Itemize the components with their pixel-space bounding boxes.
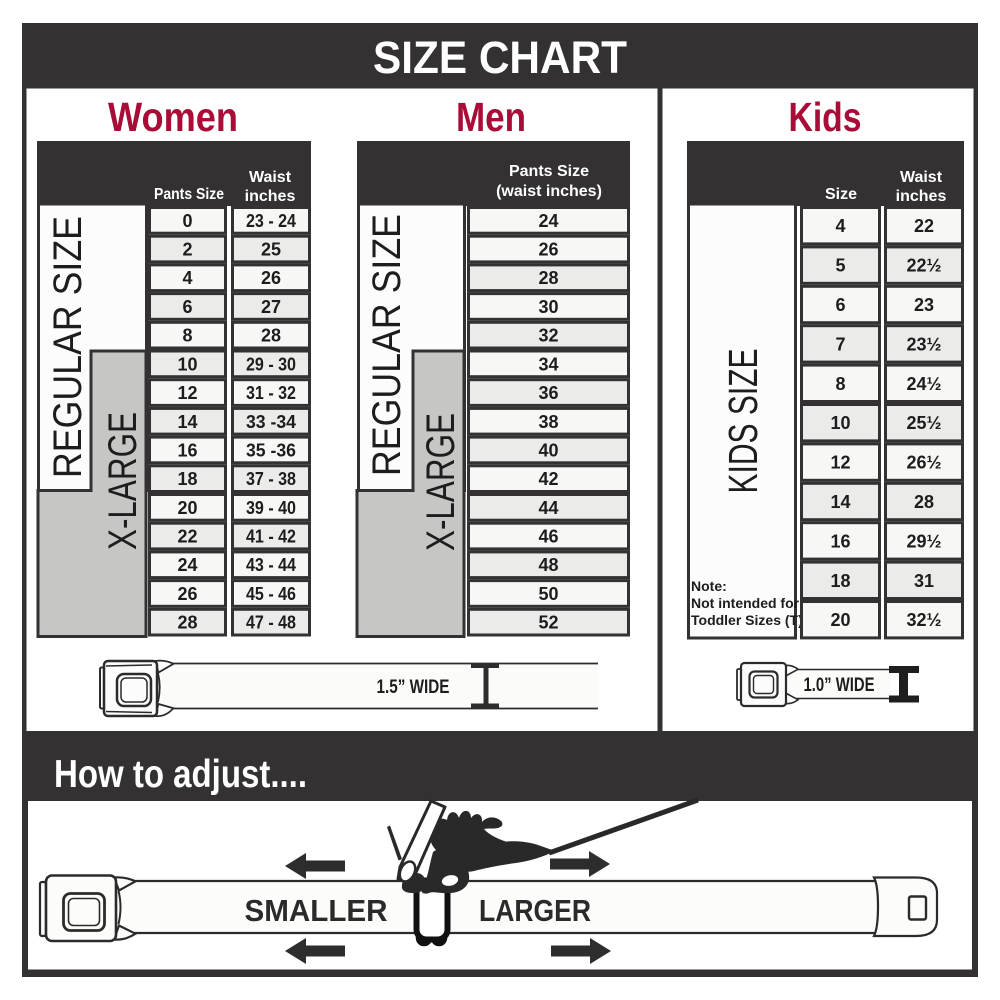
svg-text:46: 46 (538, 527, 558, 547)
svg-text:43 - 44: 43 - 44 (246, 555, 296, 575)
svg-text:36: 36 (538, 383, 558, 403)
svg-text:Toddler Sizes (T): Toddler Sizes (T) (691, 612, 803, 628)
svg-text:1.0” WIDE: 1.0” WIDE (804, 674, 875, 696)
svg-text:4: 4 (835, 216, 845, 236)
svg-text:42: 42 (538, 469, 558, 489)
svg-text:LARGER: LARGER (479, 893, 591, 928)
svg-text:45 - 46: 45 - 46 (246, 584, 296, 604)
svg-text:28: 28 (261, 326, 281, 346)
svg-text:44: 44 (538, 498, 558, 518)
svg-text:23 - 24: 23 - 24 (246, 211, 296, 231)
svg-text:23: 23 (914, 295, 934, 315)
svg-text:27: 27 (261, 297, 281, 317)
svg-text:Size: Size (825, 186, 857, 203)
svg-text:33 -34: 33 -34 (246, 412, 296, 432)
svg-text:2: 2 (182, 240, 192, 260)
svg-text:22½: 22½ (906, 256, 941, 276)
svg-text:How to adjust....: How to adjust.... (54, 753, 307, 796)
svg-text:6: 6 (182, 297, 192, 317)
svg-text:Not intended for: Not intended for (691, 595, 800, 611)
svg-text:1.5” WIDE: 1.5” WIDE (377, 676, 450, 698)
svg-text:16: 16 (830, 531, 850, 551)
svg-text:26½: 26½ (906, 453, 941, 473)
svg-text:Women: Women (108, 94, 238, 140)
svg-text:8: 8 (835, 374, 845, 394)
svg-text:SMALLER: SMALLER (245, 893, 388, 928)
svg-text:Pants Size: Pants Size (154, 186, 224, 203)
svg-text:12: 12 (177, 383, 197, 403)
svg-text:REGULAR SIZE: REGULAR SIZE (365, 214, 409, 476)
svg-text:38: 38 (538, 412, 558, 432)
svg-text:20: 20 (830, 610, 850, 630)
svg-text:22: 22 (914, 216, 934, 236)
svg-text:25½: 25½ (906, 413, 941, 433)
svg-text:Waist: Waist (249, 169, 292, 186)
svg-text:26: 26 (177, 584, 197, 604)
svg-text:26: 26 (261, 268, 281, 288)
svg-text:X-LARGE: X-LARGE (419, 413, 463, 551)
svg-text:48: 48 (538, 555, 558, 575)
svg-text:inches: inches (896, 188, 947, 205)
svg-text:31 - 32: 31 - 32 (246, 383, 296, 403)
svg-text:14: 14 (830, 492, 850, 512)
svg-text:inches: inches (245, 188, 296, 205)
svg-text:Kids: Kids (789, 94, 862, 140)
svg-text:Men: Men (456, 94, 526, 140)
svg-text:40: 40 (538, 441, 558, 461)
svg-text:32: 32 (538, 326, 558, 346)
svg-text:24: 24 (177, 555, 197, 575)
svg-text:8: 8 (182, 326, 192, 346)
svg-text:28: 28 (177, 613, 197, 633)
svg-text:18: 18 (177, 469, 197, 489)
svg-text:28: 28 (538, 268, 558, 288)
svg-text:30: 30 (538, 297, 558, 317)
svg-text:28: 28 (914, 492, 934, 512)
svg-text:Waist: Waist (900, 169, 943, 186)
svg-text:Note:: Note: (691, 578, 727, 594)
svg-text:5: 5 (835, 256, 845, 276)
svg-text:52: 52 (538, 613, 558, 633)
svg-text:50: 50 (538, 584, 558, 604)
svg-text:35 -36: 35 -36 (246, 441, 296, 461)
svg-text:16: 16 (177, 441, 197, 461)
svg-text:Pants Size: Pants Size (509, 163, 589, 180)
svg-text:22: 22 (177, 527, 197, 547)
svg-text:39 - 40: 39 - 40 (246, 498, 296, 518)
svg-text:32½: 32½ (906, 610, 941, 630)
svg-text:10: 10 (830, 413, 850, 433)
svg-text:SIZE CHART: SIZE CHART (373, 32, 627, 83)
svg-text:10: 10 (177, 354, 197, 374)
svg-text:12: 12 (830, 453, 850, 473)
svg-text:24½: 24½ (906, 374, 941, 394)
svg-text:KIDS SIZE: KIDS SIZE (720, 349, 766, 494)
svg-text:6: 6 (835, 295, 845, 315)
svg-text:29 - 30: 29 - 30 (246, 354, 296, 374)
svg-text:14: 14 (177, 412, 197, 432)
svg-text:REGULAR SIZE: REGULAR SIZE (46, 216, 90, 478)
svg-text:34: 34 (538, 354, 558, 374)
svg-text:26: 26 (538, 240, 558, 260)
svg-text:23½: 23½ (906, 334, 941, 354)
svg-text:7: 7 (835, 334, 845, 354)
svg-text:47 - 48: 47 - 48 (246, 613, 296, 633)
svg-text:20: 20 (177, 498, 197, 518)
svg-text:4: 4 (182, 268, 192, 288)
svg-text:25: 25 (261, 240, 281, 260)
svg-text:41 - 42: 41 - 42 (246, 527, 296, 547)
svg-text:24: 24 (538, 211, 558, 231)
svg-text:(waist inches): (waist inches) (496, 183, 602, 200)
svg-text:31: 31 (914, 571, 934, 591)
svg-text:18: 18 (830, 571, 850, 591)
svg-text:37 - 38: 37 - 38 (246, 469, 296, 489)
svg-text:0: 0 (182, 211, 192, 231)
svg-text:X-LARGE: X-LARGE (101, 412, 145, 550)
svg-text:29½: 29½ (906, 531, 941, 551)
